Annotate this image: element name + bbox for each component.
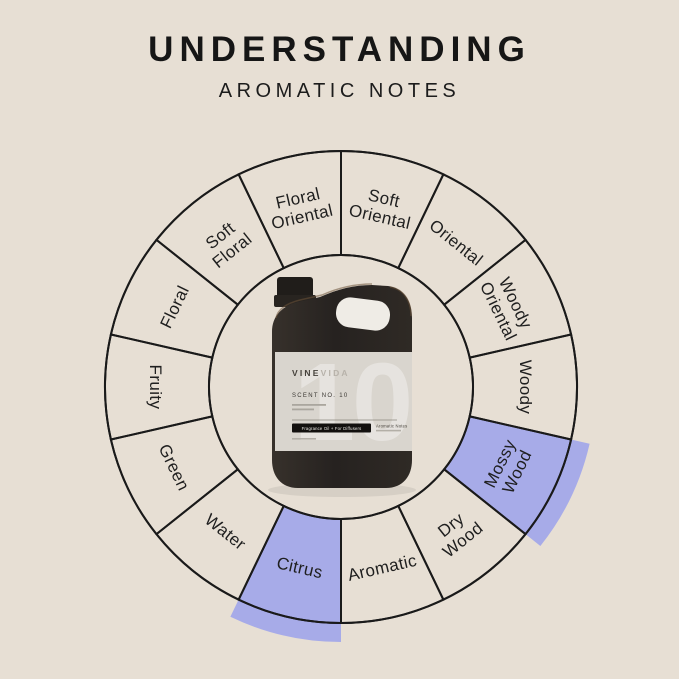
label-watermark-number: 10 <box>294 341 410 464</box>
page-subtitle: AROMATIC NOTES <box>0 81 679 101</box>
label-fineprint-bar <box>376 430 401 432</box>
wheel-label-green: Green <box>155 441 193 494</box>
wheel-label-floral-oriental: FloralOriental <box>265 182 335 233</box>
wheel-label-oriental: Oriental <box>426 216 487 270</box>
wheel-label-soft-oriental: SoftOriental <box>347 182 417 233</box>
wheel-label-fruity: Fruity <box>146 365 165 410</box>
wheel-label-dry-wood: DryWood <box>427 503 486 561</box>
product-bottle: 10 VINEVIDA SCENT NO. 10 Fragrance Oil +… <box>268 277 416 497</box>
wheel-label-woody-oriental: WoodyOriental <box>476 271 537 344</box>
label-fineprint-bar <box>292 409 314 411</box>
brand-logo-vine: VINE <box>292 368 321 378</box>
label-badge-text: Fragrance Oil + For Diffusers <box>302 426 362 431</box>
wheel-label-water: Water <box>201 510 249 554</box>
infographic-canvas: UNDERSTANDING AROMATIC NOTES SoftOrienta… <box>0 0 679 679</box>
label-scent-number: SCENT NO. 10 <box>292 393 349 399</box>
wheel-label-soft-floral: SoftFloral <box>197 214 256 272</box>
label-fineprint-bar <box>292 438 316 440</box>
wheel-label-floral: Floral <box>156 283 193 332</box>
brand-logo: VINEVIDA <box>292 368 350 378</box>
brand-logo-vida: VIDA <box>321 368 350 378</box>
page-title: UNDERSTANDING <box>0 0 679 67</box>
label-notes-text: Aromatic Notes <box>376 424 407 429</box>
wheel-label-aromatic: Aromatic <box>346 551 419 585</box>
wheel-label-woody: Woody <box>516 360 535 415</box>
label-fineprint-bar <box>292 404 326 406</box>
header: UNDERSTANDING AROMATIC NOTES <box>0 0 679 101</box>
